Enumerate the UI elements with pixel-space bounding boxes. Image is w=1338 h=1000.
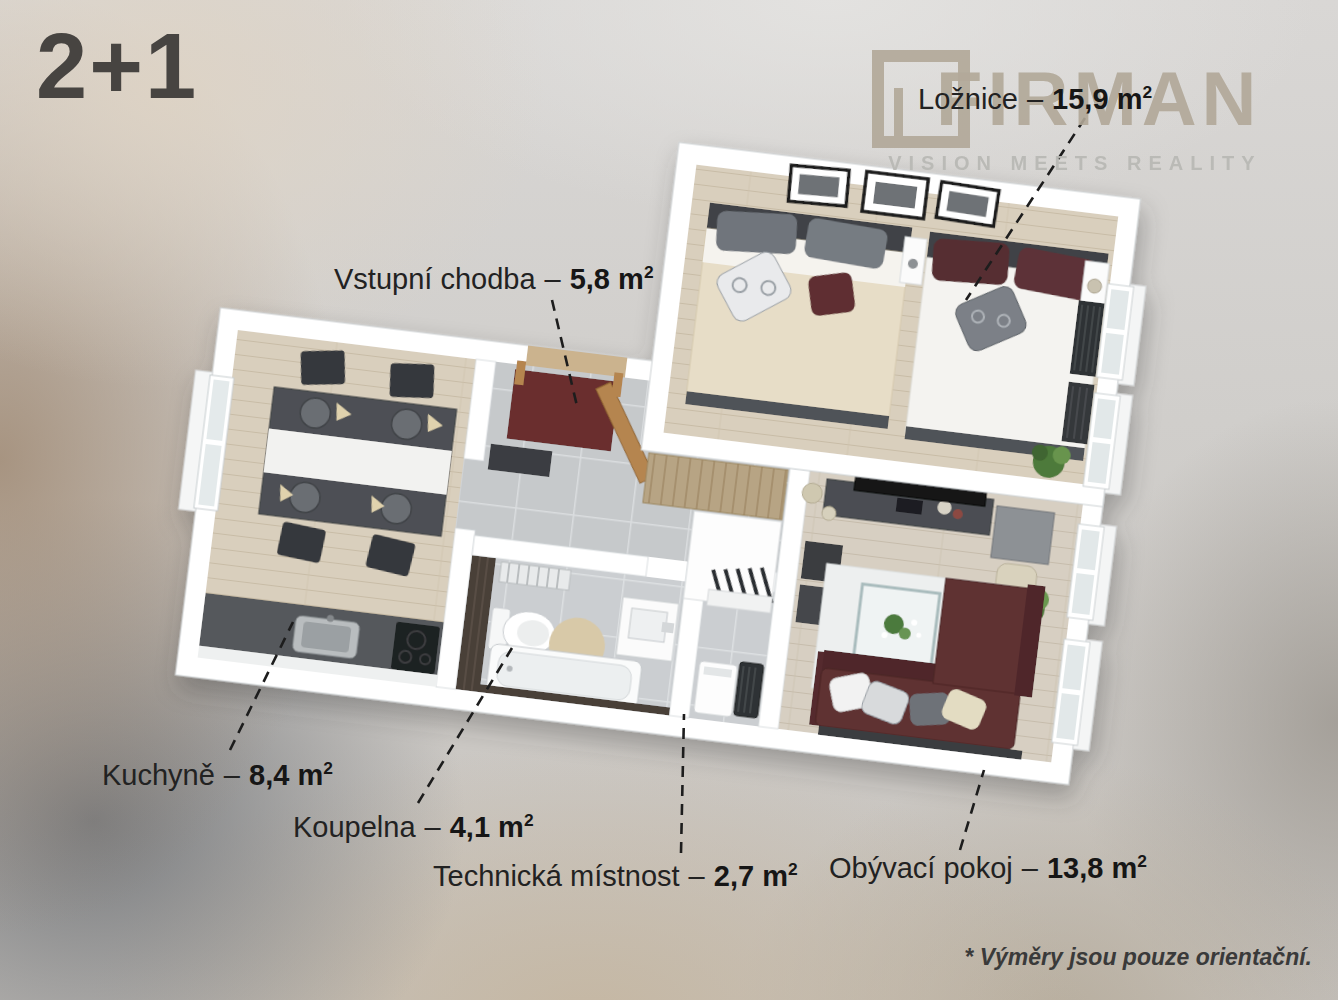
room-area: 15,9 [1052, 83, 1108, 115]
room-area: 5,8 [570, 263, 610, 295]
floorplan-page: { "title": "2+1", "logo": { "name": "FIR… [0, 0, 1338, 1000]
room-label-koupelna: Koupelna–4,1 m2 [293, 810, 534, 844]
room-label-vstupni-chodba: Vstupní chodba–5,8 m2 [334, 262, 654, 296]
room-name: Kuchyně [102, 759, 215, 791]
room-name: Ložnice [918, 83, 1018, 115]
room-label-technicka-mistnost: Technická místnost–2,7 m2 [433, 859, 798, 893]
room-label-obyvaci-pokoj: Obývací pokoj–13,8 m2 [829, 851, 1147, 885]
room-name: Technická místnost [433, 860, 680, 892]
room-area: 8,4 [249, 759, 289, 791]
room-name: Koupelna [293, 811, 416, 843]
room-name: Obývací pokoj [829, 852, 1013, 884]
room-area: 4,1 [450, 811, 490, 843]
washing-machine [694, 661, 738, 717]
bed-left [685, 203, 912, 429]
bath-sink-vanity [616, 597, 679, 661]
footnote: * Výměry jsou pouze orientační. [964, 944, 1312, 971]
room-label-loznice: Ložnice–15,9 m2 [918, 82, 1152, 116]
room-label-kuchyne: Kuchyně–8,4 m2 [102, 758, 333, 792]
apartment-plan [158, 87, 1156, 786]
page-title: 2+1 [36, 14, 198, 119]
coffee-table [854, 584, 940, 665]
room-name: Vstupní chodba [334, 263, 536, 295]
logo-tagline: VISION MEETS REALITY [888, 152, 1261, 175]
side-cabinet [991, 506, 1055, 565]
room-area: 2,7 [714, 860, 754, 892]
room-area: 13,8 [1047, 852, 1103, 884]
leader-obyvaci-pokoj [960, 770, 984, 850]
